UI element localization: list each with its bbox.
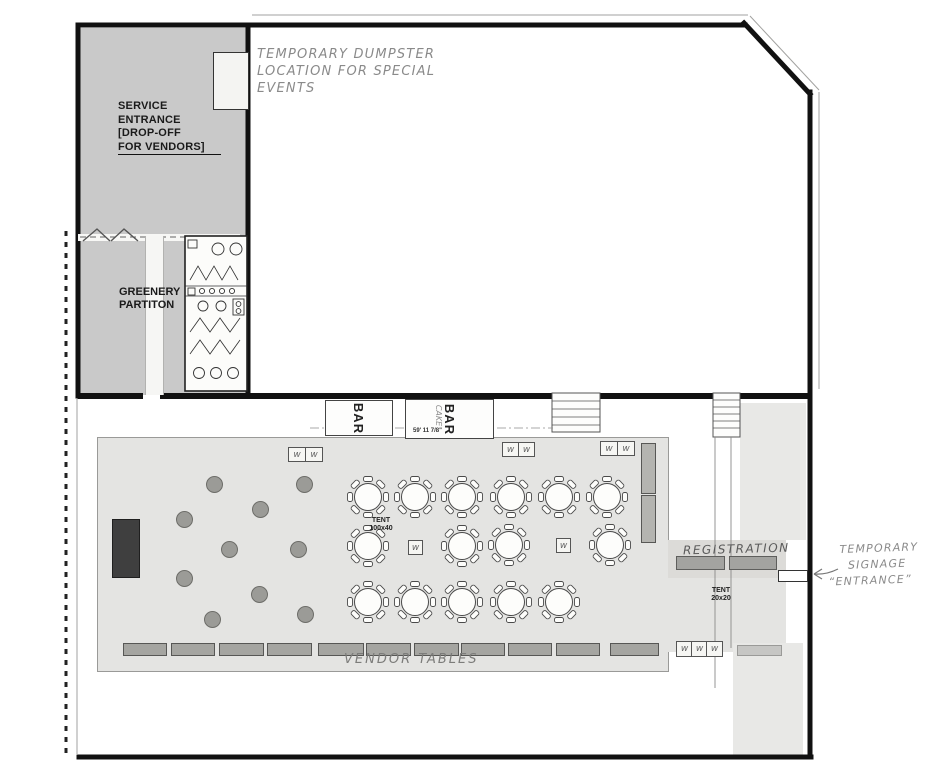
event-site-plan: BAR CAKE BAR 59' 11 7/8" SERVICE ENTRANC… — [0, 0, 930, 775]
water-station-marker: w — [408, 540, 423, 555]
dining-table — [587, 522, 633, 568]
cocktail-table — [290, 541, 307, 558]
dining-table — [536, 474, 582, 520]
service-entrance-label: SERVICE ENTRANCE [DROP-OFF FOR VENDORS] — [118, 100, 221, 155]
bar-left-label: BAR — [351, 402, 366, 433]
registration-table — [676, 556, 725, 570]
vendor-table — [508, 643, 552, 656]
cocktail-table — [206, 476, 223, 493]
vendor-table — [556, 643, 600, 656]
water-station-marker: w — [617, 441, 635, 456]
cocktail-table — [252, 501, 269, 518]
stage-block — [112, 519, 140, 578]
registration-label: REGISTRATION — [683, 541, 790, 558]
cocktail-table — [297, 606, 314, 623]
greenery-partition-strip — [145, 236, 164, 395]
registration-table — [729, 556, 777, 570]
tent-100x40-label: TENT 100x40 — [360, 517, 402, 533]
stairs-center — [552, 393, 600, 432]
water-station-marker: w — [600, 441, 618, 456]
restroom-trailer — [185, 236, 247, 391]
dining-table — [488, 474, 534, 520]
cocktail-table — [176, 511, 193, 528]
vendor-table — [267, 643, 312, 656]
water-station-marker: w — [502, 442, 519, 457]
water-station-marker: w — [305, 447, 323, 462]
vendor-table — [123, 643, 167, 656]
water-station-marker: w — [518, 442, 535, 457]
bar-left-box: BAR — [325, 400, 393, 436]
tent-20x20-label: TENT 20x20 — [700, 587, 742, 603]
cocktail-table — [176, 570, 193, 587]
cocktail-table — [221, 541, 238, 558]
dining-table — [345, 579, 391, 625]
side-buffet-table — [641, 495, 656, 543]
dining-table — [439, 579, 485, 625]
greenery-partition-label: GREENERY PARTITON — [119, 286, 180, 312]
cocktail-table — [204, 611, 221, 628]
vendor-table — [610, 643, 659, 656]
cocktail-table — [251, 586, 268, 603]
dining-table — [439, 523, 485, 569]
vendor-tables-label: VENDOR TABLES — [344, 652, 479, 667]
dining-table — [439, 474, 485, 520]
dining-table — [488, 579, 534, 625]
water-station-marker: w — [556, 538, 571, 553]
bar-right-box: CAKE BAR 59' 11 7/8" — [405, 399, 494, 439]
dining-table — [345, 474, 391, 520]
stairs-right — [713, 393, 740, 437]
dining-table — [486, 522, 532, 568]
side-table-strip — [737, 645, 782, 656]
signage-note: TEMPORARY SIGNAGE “ENTRANCE” — [821, 539, 919, 590]
water-station-marker: w — [288, 447, 306, 462]
dining-table — [392, 474, 438, 520]
dumpster-note: TEMPORARY DUMPSTER LOCATION FOR SPECIAL … — [257, 46, 435, 97]
cake-note: CAKE — [434, 405, 443, 426]
dining-table — [392, 579, 438, 625]
bar-dimension: 59' 11 7/8" — [413, 428, 442, 434]
side-buffet-table — [641, 443, 656, 494]
bar-right-label: BAR — [442, 403, 457, 434]
water-station-marker: w — [706, 641, 723, 657]
entrance-signage-board — [778, 570, 808, 582]
dining-table — [584, 474, 630, 520]
cocktail-table — [296, 476, 313, 493]
vendor-table — [219, 643, 264, 656]
dining-table — [536, 579, 582, 625]
vendor-table — [171, 643, 215, 656]
